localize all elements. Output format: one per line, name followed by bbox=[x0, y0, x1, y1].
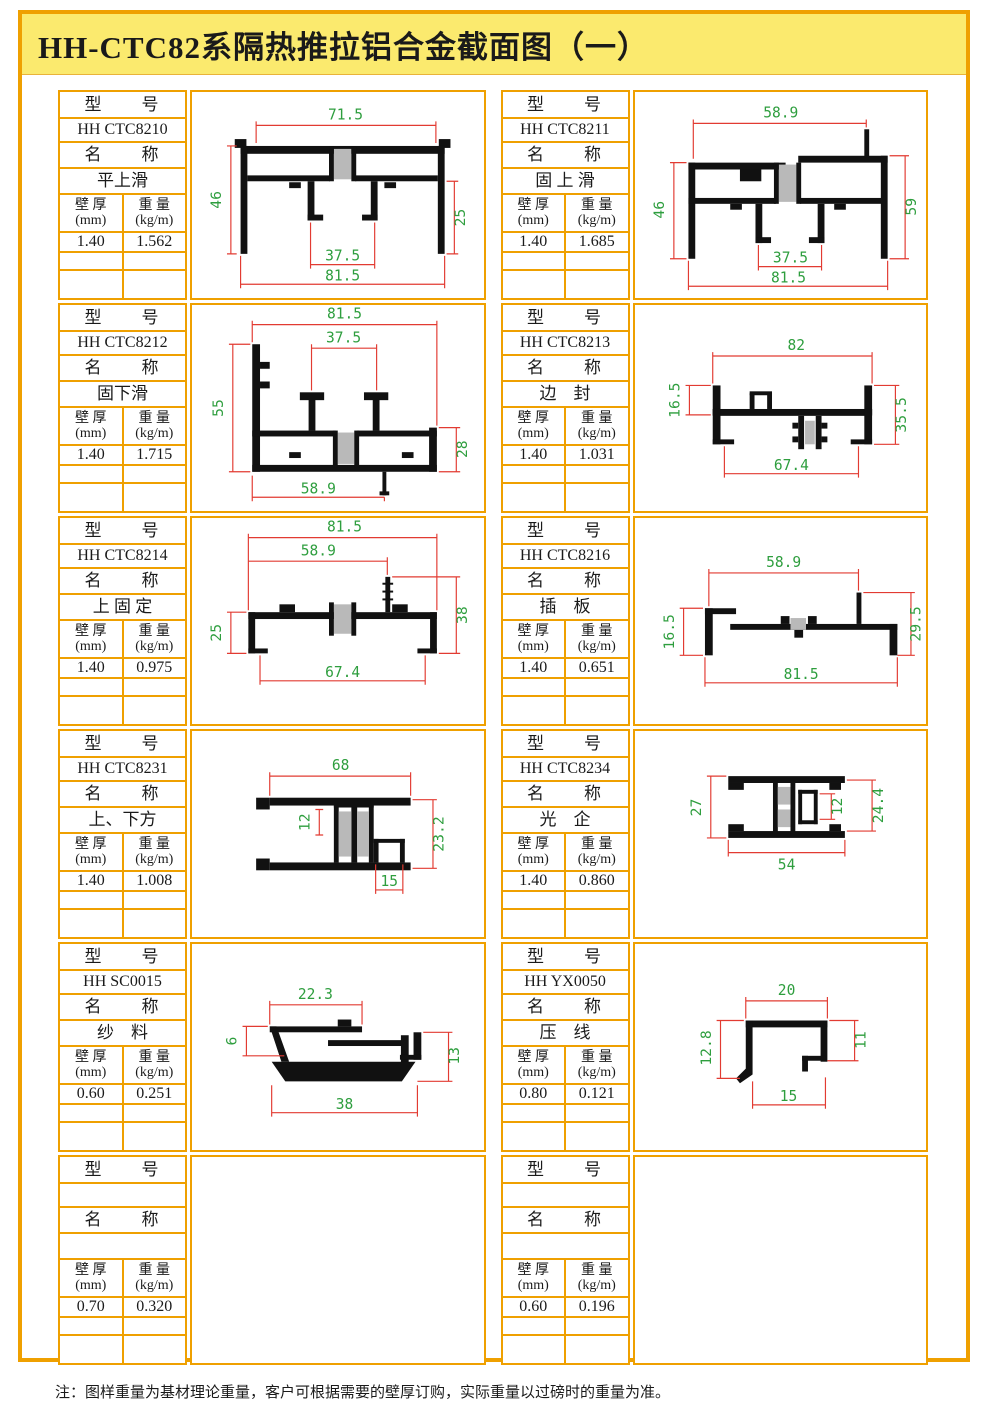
name-value bbox=[503, 1234, 628, 1260]
model-label: 型 号 bbox=[503, 1157, 628, 1184]
profile-grid: 型 号 HH CTC8210 名 称 平上滑 壁 厚 (mm)重 量 (kg/m… bbox=[58, 90, 928, 1365]
info-table: 型 号 HH CTC8210 名 称 平上滑 壁 厚 (mm)重 量 (kg/m… bbox=[58, 90, 187, 300]
name-value: 边 封 bbox=[503, 382, 628, 408]
weight-value: 0.196 bbox=[566, 1298, 628, 1316]
drawing-area: 71.5 46 25 37.5 81.5 bbox=[190, 90, 486, 300]
dim-label: 38 bbox=[336, 1096, 354, 1113]
thickness-value: 1.40 bbox=[60, 233, 124, 251]
name-value bbox=[60, 1234, 185, 1260]
thickness-value: 1.40 bbox=[60, 659, 124, 677]
thickness-value: 1.40 bbox=[503, 446, 567, 464]
spare-row bbox=[60, 679, 185, 697]
model-label: 型 号 bbox=[503, 305, 628, 332]
name-value: 固 上 滑 bbox=[503, 169, 628, 195]
dim-label: 12 bbox=[829, 798, 846, 816]
weight-value: 1.562 bbox=[124, 233, 186, 251]
page-frame: HH-CTC82系隔热推拉铝合金截面图（一） 型 号 HH CTC8210 名 … bbox=[18, 10, 970, 1362]
info-table: 型 号 HH CTC8231 名 称 上、下方 壁 厚 (mm)重 量 (kg/… bbox=[58, 729, 187, 939]
profile-drawing: 82 16.5 35.5 67.4 bbox=[635, 305, 927, 511]
dim-label: 81.5 bbox=[327, 519, 362, 536]
weight-value: 0.320 bbox=[124, 1298, 186, 1316]
info-table: 型 号 HH SC0015 名 称 纱 料 壁 厚 (mm)重 量 (kg/m)… bbox=[58, 942, 187, 1152]
weight-header: 重 量 (kg/m) bbox=[124, 1047, 186, 1083]
thickness-header: 壁 厚 (mm) bbox=[60, 408, 124, 444]
profile-drawing: 20 12.8 11 15 bbox=[635, 944, 927, 1150]
name-value: 光 企 bbox=[503, 808, 628, 834]
dim-label: 68 bbox=[332, 757, 350, 774]
dim-label: 37.5 bbox=[772, 250, 807, 267]
info-table: 型 号 HH YX0050 名 称 压 线 壁 厚 (mm)重 量 (kg/m)… bbox=[501, 942, 630, 1152]
model-label: 型 号 bbox=[60, 518, 185, 545]
dim-label: 35.5 bbox=[893, 397, 910, 432]
dim-label: 81.5 bbox=[325, 267, 360, 284]
model-label: 型 号 bbox=[503, 944, 628, 971]
model-value: HH CTC8234 bbox=[503, 758, 628, 782]
title-bar: HH-CTC82系隔热推拉铝合金截面图（一） bbox=[22, 14, 966, 75]
model-label: 型 号 bbox=[503, 518, 628, 545]
weight-header: 重 量 (kg/m) bbox=[124, 195, 186, 231]
drawing-area: 22.3 6 13 38 bbox=[190, 942, 486, 1152]
profile-drawing: 27 12 24.4 54 bbox=[635, 731, 927, 937]
dim-label: 67.4 bbox=[325, 664, 360, 681]
spare-row bbox=[60, 1105, 185, 1123]
dim-label: 29.5 bbox=[907, 606, 924, 641]
dim-label: 16.5 bbox=[660, 614, 677, 649]
dim-label: 23.2 bbox=[431, 816, 448, 851]
thickness-header: 壁 厚 (mm) bbox=[60, 834, 124, 870]
model-value: HH CTC8213 bbox=[503, 332, 628, 356]
name-label: 名 称 bbox=[60, 1208, 185, 1234]
profile-cell: 型 号 HH YX0050 名 称 压 线 壁 厚 (mm)重 量 (kg/m)… bbox=[501, 942, 929, 1152]
weight-header: 重 量 (kg/m) bbox=[124, 621, 186, 657]
profile-cell: 型 号 HH CTC8212 名 称 固下滑 壁 厚 (mm)重 量 (kg/m… bbox=[58, 303, 486, 513]
thickness-value: 1.40 bbox=[503, 872, 567, 890]
name-value: 平上滑 bbox=[60, 169, 185, 195]
dim-label: 16.5 bbox=[666, 382, 683, 417]
drawing-area: 20 12.8 11 15 bbox=[633, 942, 929, 1152]
name-value: 纱 料 bbox=[60, 1021, 185, 1047]
dim-label: 58.9 bbox=[301, 480, 336, 497]
dim-label: 37.5 bbox=[325, 248, 360, 265]
spare-row bbox=[60, 697, 185, 724]
thickness-header: 壁 厚 (mm) bbox=[503, 621, 567, 657]
drawing-area: 81.5 58.9 25 38 67.4 bbox=[190, 516, 486, 726]
name-value: 压 线 bbox=[503, 1021, 628, 1047]
profile-cell: 型 号 HH CTC8234 名 称 光 企 壁 厚 (mm)重 量 (kg/m… bbox=[501, 729, 929, 939]
dim-label: 38 bbox=[454, 606, 471, 624]
drawing-area: 82 16.5 35.5 67.4 bbox=[633, 303, 929, 513]
dim-label: 15 bbox=[779, 1088, 797, 1105]
thickness-value: 1.40 bbox=[60, 446, 124, 464]
weight-header: 重 量 (kg/m) bbox=[566, 621, 628, 657]
name-label: 名 称 bbox=[503, 569, 628, 595]
model-value: HH SC0015 bbox=[60, 971, 185, 995]
dim-label: 82 bbox=[787, 337, 805, 354]
dim-label: 58.9 bbox=[301, 542, 336, 559]
weight-header: 重 量 (kg/m) bbox=[124, 1260, 186, 1296]
profile-cell: 型 号 名 称 壁 厚 (mm)重 量 (kg/m) 0.600.196 bbox=[501, 1155, 929, 1365]
spare-row bbox=[503, 892, 628, 910]
weight-value: 1.715 bbox=[124, 446, 186, 464]
dim-label: 46 bbox=[208, 191, 225, 209]
dim-label: 55 bbox=[210, 399, 227, 417]
name-label: 名 称 bbox=[60, 995, 185, 1021]
weight-value: 0.251 bbox=[124, 1085, 186, 1103]
weight-header: 重 量 (kg/m) bbox=[124, 834, 186, 870]
dim-label: 13 bbox=[446, 1047, 463, 1065]
name-label: 名 称 bbox=[503, 782, 628, 808]
info-table: 型 号 HH CTC8212 名 称 固下滑 壁 厚 (mm)重 量 (kg/m… bbox=[58, 303, 187, 513]
info-table: 型 号 HH CTC8234 名 称 光 企 壁 厚 (mm)重 量 (kg/m… bbox=[501, 729, 630, 939]
profile-drawing: 68 12 23.2 15 bbox=[192, 731, 484, 937]
spare-row bbox=[503, 1318, 628, 1336]
thickness-header: 壁 厚 (mm) bbox=[60, 1260, 124, 1296]
model-value bbox=[60, 1184, 185, 1208]
weight-value: 0.975 bbox=[124, 659, 186, 677]
profile-cell: 型 号 HH CTC8211 名 称 固 上 滑 壁 厚 (mm)重 量 (kg… bbox=[501, 90, 929, 300]
weight-header: 重 量 (kg/m) bbox=[566, 408, 628, 444]
drawing-area: 27 12 24.4 54 bbox=[633, 729, 929, 939]
profile-cell: 型 号 HH CTC8231 名 称 上、下方 壁 厚 (mm)重 量 (kg/… bbox=[58, 729, 486, 939]
drawing-area: 58.9 16.5 29.5 81.5 bbox=[633, 516, 929, 726]
dim-label: 58.9 bbox=[766, 554, 801, 571]
name-value: 上 固 定 bbox=[60, 595, 185, 621]
model-label: 型 号 bbox=[60, 92, 185, 119]
spare-row bbox=[503, 271, 628, 298]
info-table: 型 号 HH CTC8214 名 称 上 固 定 壁 厚 (mm)重 量 (kg… bbox=[58, 516, 187, 726]
profile-cell: 型 号 HH CTC8210 名 称 平上滑 壁 厚 (mm)重 量 (kg/m… bbox=[58, 90, 486, 300]
weight-value: 0.651 bbox=[566, 659, 628, 677]
spare-row bbox=[503, 697, 628, 724]
model-label: 型 号 bbox=[60, 944, 185, 971]
profile-cell: 型 号 HH CTC8214 名 称 上 固 定 壁 厚 (mm)重 量 (kg… bbox=[58, 516, 486, 726]
profile-drawing: 22.3 6 13 38 bbox=[192, 944, 484, 1150]
weight-value: 1.685 bbox=[566, 233, 628, 251]
model-value: HH CTC8212 bbox=[60, 332, 185, 356]
name-label: 名 称 bbox=[60, 569, 185, 595]
profile-cell: 型 号 HH CTC8213 名 称 边 封 壁 厚 (mm)重 量 (kg/m… bbox=[501, 303, 929, 513]
name-value: 上、下方 bbox=[60, 808, 185, 834]
dim-label: 25 bbox=[452, 209, 469, 227]
thickness-header: 壁 厚 (mm) bbox=[503, 195, 567, 231]
drawing-area bbox=[633, 1155, 929, 1365]
name-label: 名 称 bbox=[503, 1208, 628, 1234]
dim-label: 81.5 bbox=[327, 306, 362, 323]
info-table: 型 号 HH CTC8211 名 称 固 上 滑 壁 厚 (mm)重 量 (kg… bbox=[501, 90, 630, 300]
thickness-value: 0.70 bbox=[60, 1298, 124, 1316]
profile-drawing: 71.5 46 25 37.5 81.5 bbox=[192, 92, 484, 298]
thickness-header: 壁 厚 (mm) bbox=[503, 834, 567, 870]
weight-header: 重 量 (kg/m) bbox=[566, 1047, 628, 1083]
model-value: HH CTC8211 bbox=[503, 119, 628, 143]
spare-row bbox=[60, 1336, 185, 1363]
dim-label: 11 bbox=[852, 1031, 869, 1049]
name-label: 名 称 bbox=[503, 356, 628, 382]
weight-header: 重 量 (kg/m) bbox=[566, 195, 628, 231]
spare-row bbox=[503, 1123, 628, 1150]
name-label: 名 称 bbox=[60, 782, 185, 808]
weight-value: 0.121 bbox=[566, 1085, 628, 1103]
profile-cell: 型 号 HH CTC8216 名 称 插 板 壁 厚 (mm)重 量 (kg/m… bbox=[501, 516, 929, 726]
thickness-header: 壁 厚 (mm) bbox=[503, 1260, 567, 1296]
dim-label: 81.5 bbox=[770, 269, 805, 286]
dim-label: 71.5 bbox=[328, 106, 363, 123]
dim-label: 28 bbox=[454, 440, 471, 458]
weight-value: 0.860 bbox=[566, 872, 628, 890]
thickness-header: 壁 厚 (mm) bbox=[60, 621, 124, 657]
weight-header: 重 量 (kg/m) bbox=[566, 834, 628, 870]
spare-row bbox=[503, 484, 628, 511]
dim-label: 46 bbox=[651, 201, 668, 219]
thickness-value: 0.60 bbox=[60, 1085, 124, 1103]
spare-row bbox=[503, 679, 628, 697]
profile-drawing: 58.9 16.5 29.5 81.5 bbox=[635, 518, 927, 724]
info-table: 型 号 HH CTC8213 名 称 边 封 壁 厚 (mm)重 量 (kg/m… bbox=[501, 303, 630, 513]
model-label: 型 号 bbox=[60, 1157, 185, 1184]
drawing-area: 68 12 23.2 15 bbox=[190, 729, 486, 939]
dim-label: 58.9 bbox=[763, 104, 798, 121]
dim-label: 20 bbox=[777, 982, 795, 999]
spare-row bbox=[60, 271, 185, 298]
dim-label: 12.8 bbox=[697, 1030, 714, 1065]
drawing-area bbox=[190, 1155, 486, 1365]
model-label: 型 号 bbox=[60, 305, 185, 332]
dim-label: 15 bbox=[380, 873, 398, 890]
spare-row bbox=[503, 1336, 628, 1363]
profile-drawing: 81.5 58.9 25 38 67.4 bbox=[192, 518, 484, 724]
thickness-value: 0.80 bbox=[503, 1085, 567, 1103]
name-label: 名 称 bbox=[60, 356, 185, 382]
spare-row bbox=[60, 466, 185, 484]
drawing-area: 81.5 37.5 55 28 58.9 bbox=[190, 303, 486, 513]
name-value: 固下滑 bbox=[60, 382, 185, 408]
spare-row bbox=[60, 1318, 185, 1336]
info-table: 型 号 名 称 壁 厚 (mm)重 量 (kg/m) 0.600.196 bbox=[501, 1155, 630, 1365]
dim-label: 37.5 bbox=[326, 329, 361, 346]
profile-drawing: 58.9 46 59 37.5 81.5 bbox=[635, 92, 927, 298]
info-table: 型 号 名 称 壁 厚 (mm)重 量 (kg/m) 0.700.320 bbox=[58, 1155, 187, 1365]
name-label: 名 称 bbox=[503, 143, 628, 169]
dim-label: 6 bbox=[224, 1037, 241, 1046]
thickness-header: 壁 厚 (mm) bbox=[503, 1047, 567, 1083]
page-title: HH-CTC82系隔热推拉铝合金截面图（一） bbox=[38, 22, 649, 67]
thickness-value: 1.40 bbox=[503, 659, 567, 677]
name-value: 插 板 bbox=[503, 595, 628, 621]
model-value: HH CTC8214 bbox=[60, 545, 185, 569]
dim-label: 24.4 bbox=[869, 788, 886, 824]
model-value bbox=[503, 1184, 628, 1208]
thickness-value: 0.60 bbox=[503, 1298, 567, 1316]
weight-header: 重 量 (kg/m) bbox=[566, 1260, 628, 1296]
spare-row bbox=[60, 484, 185, 511]
thickness-value: 1.40 bbox=[503, 233, 567, 251]
spare-row bbox=[503, 253, 628, 271]
model-value: HH CTC8216 bbox=[503, 545, 628, 569]
model-value: HH CTC8231 bbox=[60, 758, 185, 782]
weight-header: 重 量 (kg/m) bbox=[124, 408, 186, 444]
dim-label: 67.4 bbox=[773, 457, 808, 474]
spare-row bbox=[60, 253, 185, 271]
thickness-header: 壁 厚 (mm) bbox=[503, 408, 567, 444]
spare-row bbox=[60, 892, 185, 910]
name-label: 名 称 bbox=[503, 995, 628, 1021]
dim-label: 81.5 bbox=[783, 666, 818, 683]
profile-drawing: 81.5 37.5 55 28 58.9 bbox=[192, 305, 484, 511]
dim-label: 12 bbox=[297, 813, 314, 831]
spare-row bbox=[60, 910, 185, 937]
weight-value: 1.031 bbox=[566, 446, 628, 464]
weight-value: 1.008 bbox=[124, 872, 186, 890]
thickness-header: 壁 厚 (mm) bbox=[60, 195, 124, 231]
dim-label: 25 bbox=[208, 624, 225, 642]
model-value: HH YX0050 bbox=[503, 971, 628, 995]
thickness-value: 1.40 bbox=[60, 872, 124, 890]
model-label: 型 号 bbox=[503, 92, 628, 119]
spare-row bbox=[503, 1105, 628, 1123]
thickness-header: 壁 厚 (mm) bbox=[60, 1047, 124, 1083]
dim-label: 54 bbox=[777, 856, 795, 873]
spare-row bbox=[503, 910, 628, 937]
spare-row bbox=[503, 466, 628, 484]
dim-label: 59 bbox=[902, 198, 919, 216]
footer-note: 注：图样重量为基材理论重量，客户可根据需要的壁厚订购，实际重量以过磅时的重量为准… bbox=[55, 1381, 670, 1402]
profile-cell: 型 号 HH SC0015 名 称 纱 料 壁 厚 (mm)重 量 (kg/m)… bbox=[58, 942, 486, 1152]
dim-label: 27 bbox=[688, 799, 705, 817]
dim-label: 22.3 bbox=[298, 986, 333, 1003]
profile-cell: 型 号 名 称 壁 厚 (mm)重 量 (kg/m) 0.700.320 bbox=[58, 1155, 486, 1365]
name-label: 名 称 bbox=[60, 143, 185, 169]
drawing-area: 58.9 46 59 37.5 81.5 bbox=[633, 90, 929, 300]
spare-row bbox=[60, 1123, 185, 1150]
info-table: 型 号 HH CTC8216 名 称 插 板 壁 厚 (mm)重 量 (kg/m… bbox=[501, 516, 630, 726]
model-label: 型 号 bbox=[60, 731, 185, 758]
model-value: HH CTC8210 bbox=[60, 119, 185, 143]
model-label: 型 号 bbox=[503, 731, 628, 758]
